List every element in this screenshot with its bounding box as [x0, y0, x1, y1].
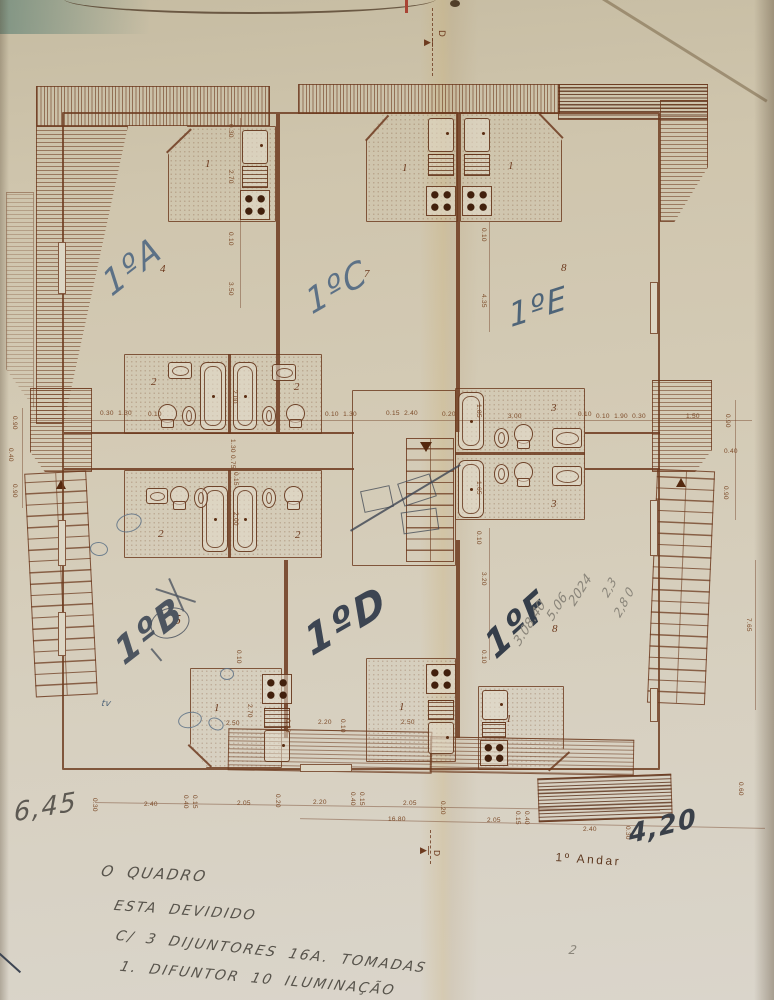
- drainboard-symbol: [482, 722, 506, 738]
- bidet-symbol: [262, 406, 276, 426]
- dim-label: 0.15: [232, 472, 239, 486]
- room-label: 2: [295, 529, 301, 541]
- dim-label: 0.20: [442, 411, 456, 418]
- hand-label: 6,45: [14, 789, 77, 827]
- stove-symbol: [480, 740, 508, 766]
- dim-label: 16.80: [388, 816, 406, 823]
- marker-label: D: [432, 850, 441, 856]
- dim-label: 0.60: [737, 782, 744, 796]
- dim-label: 2.05: [487, 817, 501, 824]
- dim-label: 0.40: [7, 448, 14, 462]
- dim-label: 2.50: [226, 720, 240, 727]
- stove-symbol: [240, 190, 270, 220]
- dim-label: 1.85: [475, 404, 482, 418]
- dim-label: 2.05: [403, 800, 417, 807]
- sink-symbol: [264, 730, 290, 762]
- pen-scribble: [220, 668, 234, 680]
- dim-label: 0.15: [514, 811, 521, 825]
- window: [650, 282, 658, 334]
- bidet-symbol: [494, 428, 509, 448]
- room-label: 2: [294, 381, 300, 393]
- dim-label: 0.90: [11, 484, 18, 498]
- room-label: 1: [506, 713, 512, 725]
- dim-label: 3.50: [227, 282, 234, 296]
- dim-label: 2.00: [231, 390, 238, 404]
- basin-symbol: [146, 488, 168, 504]
- window: [58, 242, 66, 294]
- dimension-line: [240, 118, 241, 308]
- pencil-label: 2: [568, 944, 578, 956]
- hand-label: tv: [100, 700, 112, 709]
- sink-symbol: [242, 130, 268, 164]
- stair-direction-arrow: [676, 478, 686, 487]
- room-label: 8: [561, 262, 567, 274]
- balcony-hatch: [298, 84, 560, 114]
- dim-label: 2.70: [246, 704, 253, 718]
- dim-label: 0.40: [724, 448, 738, 455]
- dim-label: 2.40: [144, 801, 158, 808]
- dim-label: 0.40: [182, 795, 189, 809]
- room-label: 1: [508, 160, 514, 172]
- party-wall: [456, 540, 460, 738]
- dim-label: 0.40: [523, 811, 530, 825]
- window: [300, 764, 352, 772]
- dim-label: 2.05: [237, 800, 251, 807]
- dim-label: 3.20: [480, 572, 487, 586]
- dim-label: 4.35: [480, 294, 487, 308]
- window: [650, 500, 658, 556]
- room-label: 1: [402, 162, 408, 174]
- bathroom-divider: [228, 470, 231, 558]
- corridor-wall: [585, 432, 660, 434]
- toilet-symbol: [284, 486, 301, 510]
- dim-label: 0.10: [235, 650, 242, 664]
- room-label: 2: [151, 376, 157, 388]
- dim-label: 2.20: [313, 799, 327, 806]
- note-label: O QUADRO: [100, 864, 209, 884]
- dimension-line: [30, 420, 752, 421]
- drainboard-symbol: [242, 166, 268, 188]
- toilet-symbol: [170, 486, 187, 510]
- dim-label: 0.10: [578, 411, 592, 418]
- toilet-symbol: [514, 462, 531, 487]
- dim-label: 1.65: [475, 481, 482, 495]
- dim-label: 0.10: [227, 232, 234, 246]
- room-label: 2: [158, 528, 164, 540]
- dim-label: 0.15: [358, 792, 365, 806]
- dim-label: 0.20: [439, 801, 446, 815]
- bathroom-divider: [455, 452, 585, 455]
- window: [58, 612, 66, 656]
- dim-label: 1.30: [229, 439, 236, 453]
- marker-label: ▶|: [420, 846, 430, 856]
- room-label: 8: [552, 623, 558, 635]
- dim-label: 0.10 1.90 0.30: [596, 413, 646, 420]
- floor-plan-sheet: 1114782233225681110.302.700.103.500.104.…: [0, 0, 774, 1000]
- dim-label: 0.10: [480, 650, 487, 664]
- basin-symbol: [552, 466, 582, 486]
- dim-label: 2.50: [401, 719, 415, 726]
- sink-symbol: [428, 722, 454, 754]
- dim-label: 0.30 1.30: [100, 410, 132, 417]
- dimension-line: [22, 408, 23, 508]
- paper-edge-shadow: [754, 0, 774, 1000]
- marker-label: D: [436, 30, 446, 37]
- stove-symbol: [262, 674, 292, 704]
- dim-label: 0.15 2.40: [386, 410, 418, 417]
- dim-label: 0.10: [480, 228, 487, 242]
- section-line: [430, 830, 431, 864]
- dim-label: 0.30: [227, 124, 234, 138]
- toilet-symbol: [286, 404, 303, 428]
- balcony-hatch: [6, 192, 34, 408]
- dim-label: 0.90: [722, 486, 729, 500]
- window: [58, 520, 66, 566]
- room-label: 3: [551, 498, 557, 510]
- room-label: 1: [399, 701, 405, 713]
- dim-label: 3.00: [508, 413, 522, 420]
- bathtub-symbol: [458, 392, 484, 450]
- dim-label: 0.10 1.30: [325, 411, 357, 418]
- dim-label: 2.40: [583, 826, 597, 833]
- dimension-line: [489, 222, 490, 332]
- dim-label: 0.20: [284, 719, 291, 733]
- note-label: ESTA DEVIDIDO: [113, 899, 259, 923]
- stove-symbol: [426, 664, 456, 694]
- corridor-wall: [585, 468, 660, 470]
- bidet-symbol: [194, 488, 208, 508]
- room-label: 3: [551, 402, 557, 414]
- paper-edge-shadow: [0, 0, 9, 1000]
- drainboard-symbol: [464, 154, 490, 176]
- bidet-symbol: [494, 464, 509, 484]
- dim-label: 0.75: [229, 455, 236, 469]
- basin-symbol: [168, 362, 192, 379]
- dim-label: 0.20: [274, 794, 281, 808]
- dim-label: 0.30: [91, 798, 98, 812]
- dim-label: 0.40: [349, 792, 356, 806]
- sink-symbol: [482, 690, 508, 720]
- dim-label: 0.10: [475, 531, 482, 545]
- dim-label: 0.90: [724, 414, 731, 428]
- balcony-hatch: [660, 100, 708, 222]
- room-label: 1: [205, 158, 211, 170]
- dim-label: 0.90: [11, 416, 18, 430]
- dimension-line: [735, 400, 736, 520]
- basin-symbol: [552, 428, 582, 448]
- drainboard-symbol: [428, 154, 454, 176]
- dim-label: 1.50: [686, 413, 700, 420]
- dim-label: 0.10: [339, 719, 346, 733]
- dim-label: 2.20: [318, 719, 332, 726]
- drainboard-symbol: [428, 700, 454, 720]
- bidet-symbol: [182, 406, 196, 426]
- print-label: 1º Andar: [555, 850, 622, 869]
- marker-label: ▶|: [424, 38, 434, 48]
- sink-symbol: [464, 118, 490, 152]
- dim-label: 0.10: [148, 411, 162, 418]
- stove-symbol: [462, 186, 492, 216]
- dimension-line: [755, 560, 756, 710]
- stove-symbol: [426, 186, 456, 216]
- toilet-symbol: [514, 424, 531, 449]
- sink-symbol: [428, 118, 454, 152]
- bidet-symbol: [262, 488, 276, 508]
- dim-label: 0.15: [191, 795, 198, 809]
- dim-label: 2.00: [232, 512, 239, 526]
- window: [650, 688, 658, 722]
- dim-label: 2.70: [227, 170, 234, 184]
- fold-mark: [405, 0, 408, 13]
- basin-symbol: [272, 364, 296, 381]
- dim-label: 7.65: [745, 618, 752, 632]
- balcony-hatch: [652, 380, 712, 472]
- room-label: 1: [214, 702, 220, 714]
